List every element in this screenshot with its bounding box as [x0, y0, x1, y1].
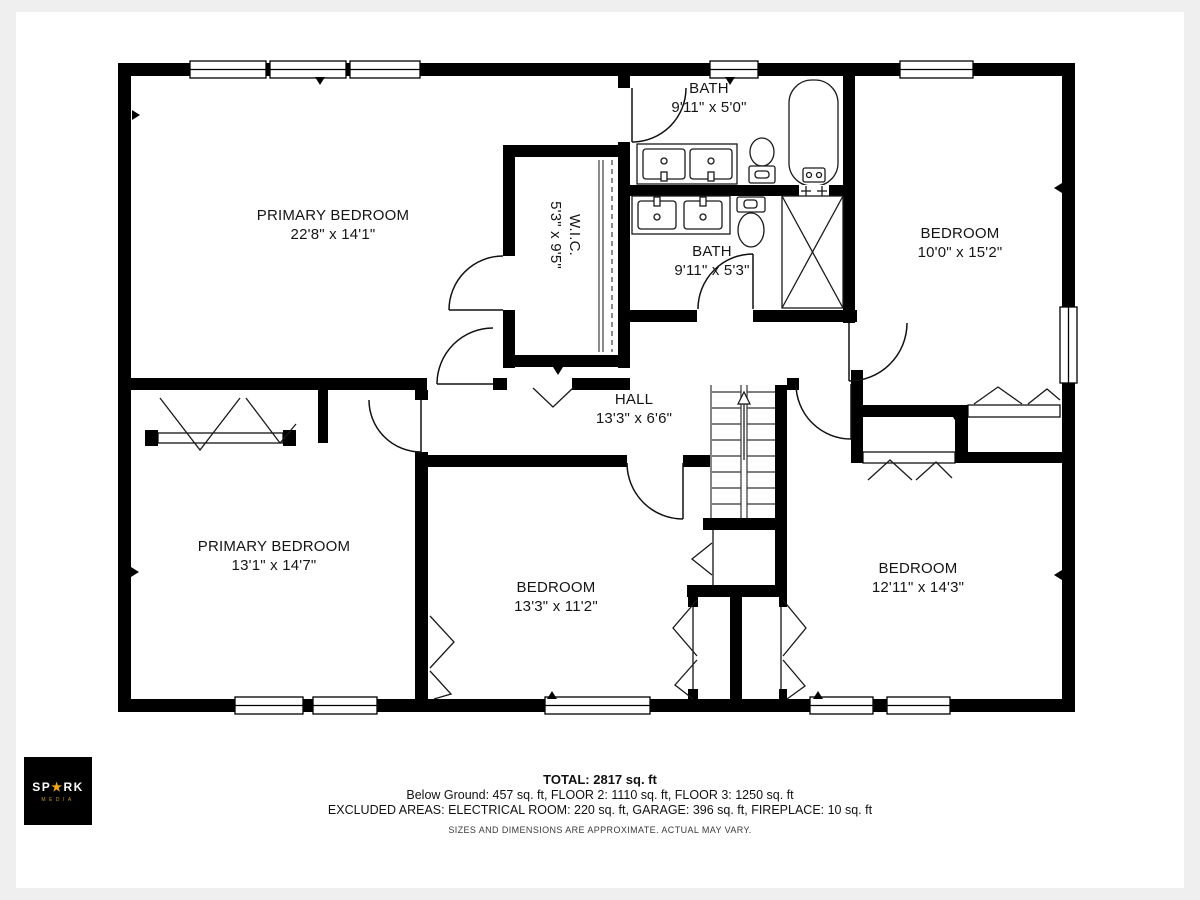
- floor-plan-page: PRIMARY BEDROOM 22'8" x 14'1" W.I.C. 5'3…: [0, 0, 1200, 900]
- window: [887, 697, 950, 714]
- room-dims: 13'1" x 14'7": [198, 556, 350, 575]
- room-dims: 10'0" x 15'2": [918, 243, 1003, 262]
- room-name: W.I.C.: [565, 201, 584, 269]
- label-hall: HALL 13'3" x 6'6": [596, 390, 672, 428]
- label-bedroom-bottom-middle: BEDROOM 13'3" x 11'2": [514, 578, 598, 616]
- window: [710, 61, 758, 78]
- label-bedroom-bottom-right: BEDROOM 12'11" x 14'3": [872, 559, 964, 597]
- room-name: PRIMARY BEDROOM: [257, 206, 409, 225]
- label-wic: W.I.C. 5'3" x 9'5": [546, 201, 584, 269]
- vanity-sinks-icon: [632, 196, 730, 234]
- room-name: PRIMARY BEDROOM: [198, 537, 350, 556]
- label-primary-bedroom-bottom: PRIMARY BEDROOM 13'1" x 14'7": [198, 537, 350, 575]
- floor-areas-text: Below Ground: 457 sq. ft, FLOOR 2: 1110 …: [0, 788, 1200, 802]
- room-name: BATH: [671, 79, 746, 98]
- label-bedroom-top-right: BEDROOM 10'0" x 15'2": [918, 224, 1003, 262]
- room-dims: 9'11" x 5'3": [674, 261, 749, 280]
- window: [313, 697, 377, 714]
- logo-brand-text: SP★RK: [32, 780, 84, 794]
- logo-subtext: MEDIA: [41, 797, 74, 803]
- room-dims: 9'11" x 5'0": [671, 98, 746, 117]
- door-bedroom-middle: [627, 463, 683, 519]
- stairs: [711, 385, 775, 518]
- toilet-icon: [737, 197, 765, 247]
- room-name: BEDROOM: [514, 578, 598, 597]
- room-dims: 22'8" x 14'1": [257, 225, 409, 244]
- door-primary-bottom: [369, 400, 421, 452]
- window: [1060, 307, 1077, 383]
- window: [235, 697, 303, 714]
- label-bath-top: BATH 9'11" x 5'0": [671, 79, 746, 117]
- window: [350, 61, 420, 78]
- shower-icon: [782, 196, 843, 308]
- door-primary-top: [437, 328, 493, 384]
- star-icon: ★: [51, 780, 63, 794]
- toilet-icon: [749, 138, 775, 183]
- window: [810, 697, 873, 714]
- window: [545, 697, 650, 714]
- room-name: BEDROOM: [872, 559, 964, 578]
- window: [270, 61, 346, 78]
- room-name: HALL: [596, 390, 672, 409]
- stairs-up-arrow-icon: [738, 392, 750, 460]
- bathtub-icon: [789, 80, 838, 199]
- logo-brand-post: RK: [63, 780, 83, 794]
- excluded-areas-text: EXCLUDED AREAS: ELECTRICAL ROOM: 220 sq.…: [0, 803, 1200, 817]
- room-dims: 13'3" x 6'6": [596, 409, 672, 428]
- room-name: BATH: [674, 242, 749, 261]
- room-dims: 12'11" x 14'3": [872, 578, 964, 597]
- window: [190, 61, 266, 78]
- spark-media-logo: SP★RK MEDIA: [24, 757, 92, 825]
- room-dims: 13'3" x 11'2": [514, 597, 598, 616]
- door-bedroom-bottom-right: [796, 384, 851, 439]
- wic-rod-lines: [599, 160, 612, 352]
- door-wic: [449, 256, 503, 310]
- total-area-text: TOTAL: 2817 sq. ft: [0, 772, 1200, 787]
- label-primary-bedroom-top: PRIMARY BEDROOM 22'8" x 14'1": [257, 206, 409, 244]
- room-name: BEDROOM: [918, 224, 1003, 243]
- logo-brand-pre: SP: [32, 780, 51, 794]
- disclaimer-text: SIZES AND DIMENSIONS ARE APPROXIMATE. AC…: [0, 825, 1200, 835]
- room-dims: 5'3" x 9'5": [546, 201, 565, 269]
- floor-plan-drawing: [0, 0, 1200, 900]
- window: [900, 61, 973, 78]
- vanity-sinks-icon: [637, 144, 737, 184]
- label-bath-mid: BATH 9'11" x 5'3": [674, 242, 749, 280]
